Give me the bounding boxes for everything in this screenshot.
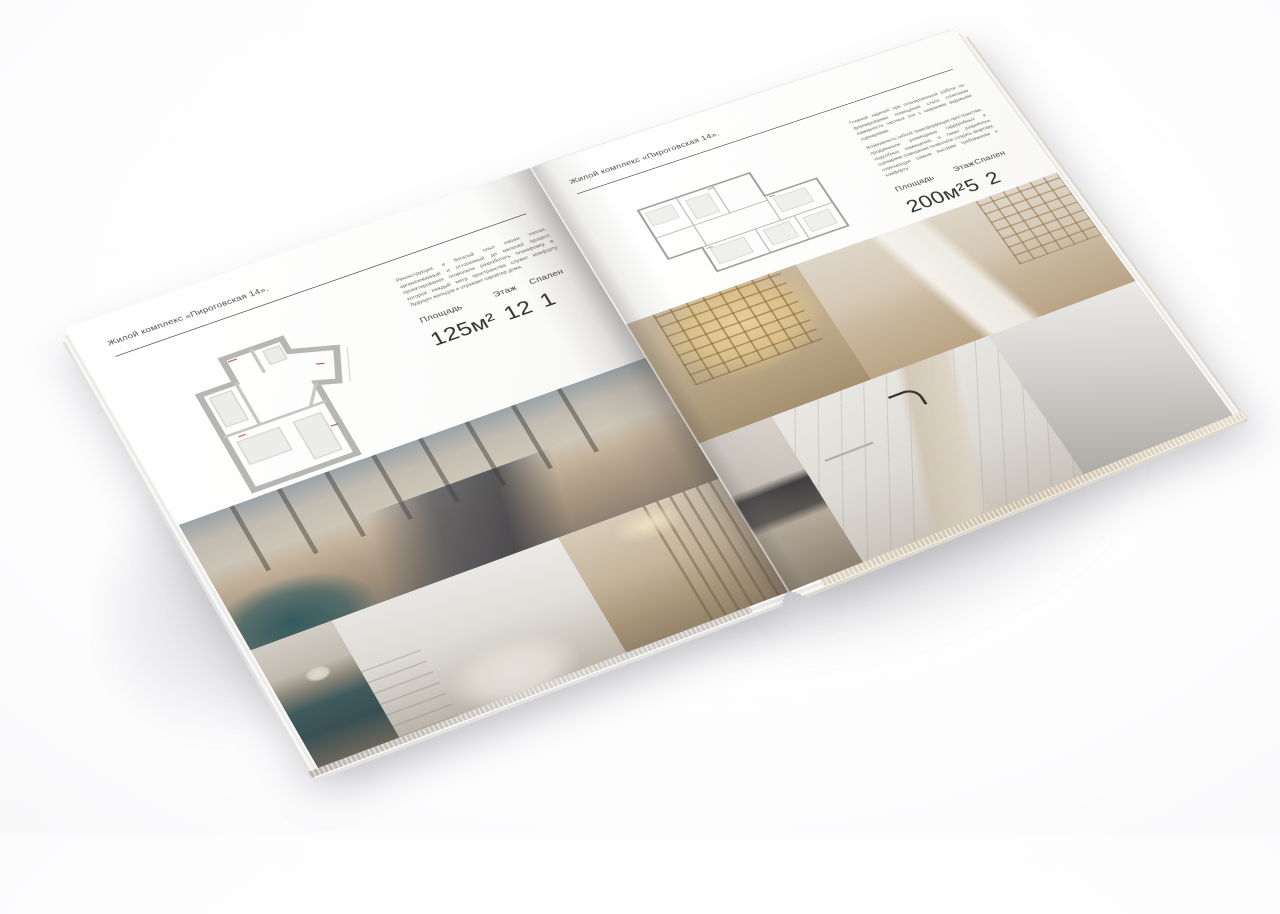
brochure-spread: Жилой комплекс «Пироговская 14». (0, 0, 1280, 835)
stat-value: 1 (535, 280, 580, 312)
stat-bedrooms: Спален 1 (527, 267, 580, 312)
stat-value: 12 (499, 296, 537, 325)
photo-backdrop: Жилой комплекс «Пироговская 14». (0, 0, 1280, 835)
stat-label: Этаж (951, 159, 976, 173)
stat-floor: Этаж 12 (491, 282, 537, 324)
stat-label: Этаж (491, 282, 522, 299)
